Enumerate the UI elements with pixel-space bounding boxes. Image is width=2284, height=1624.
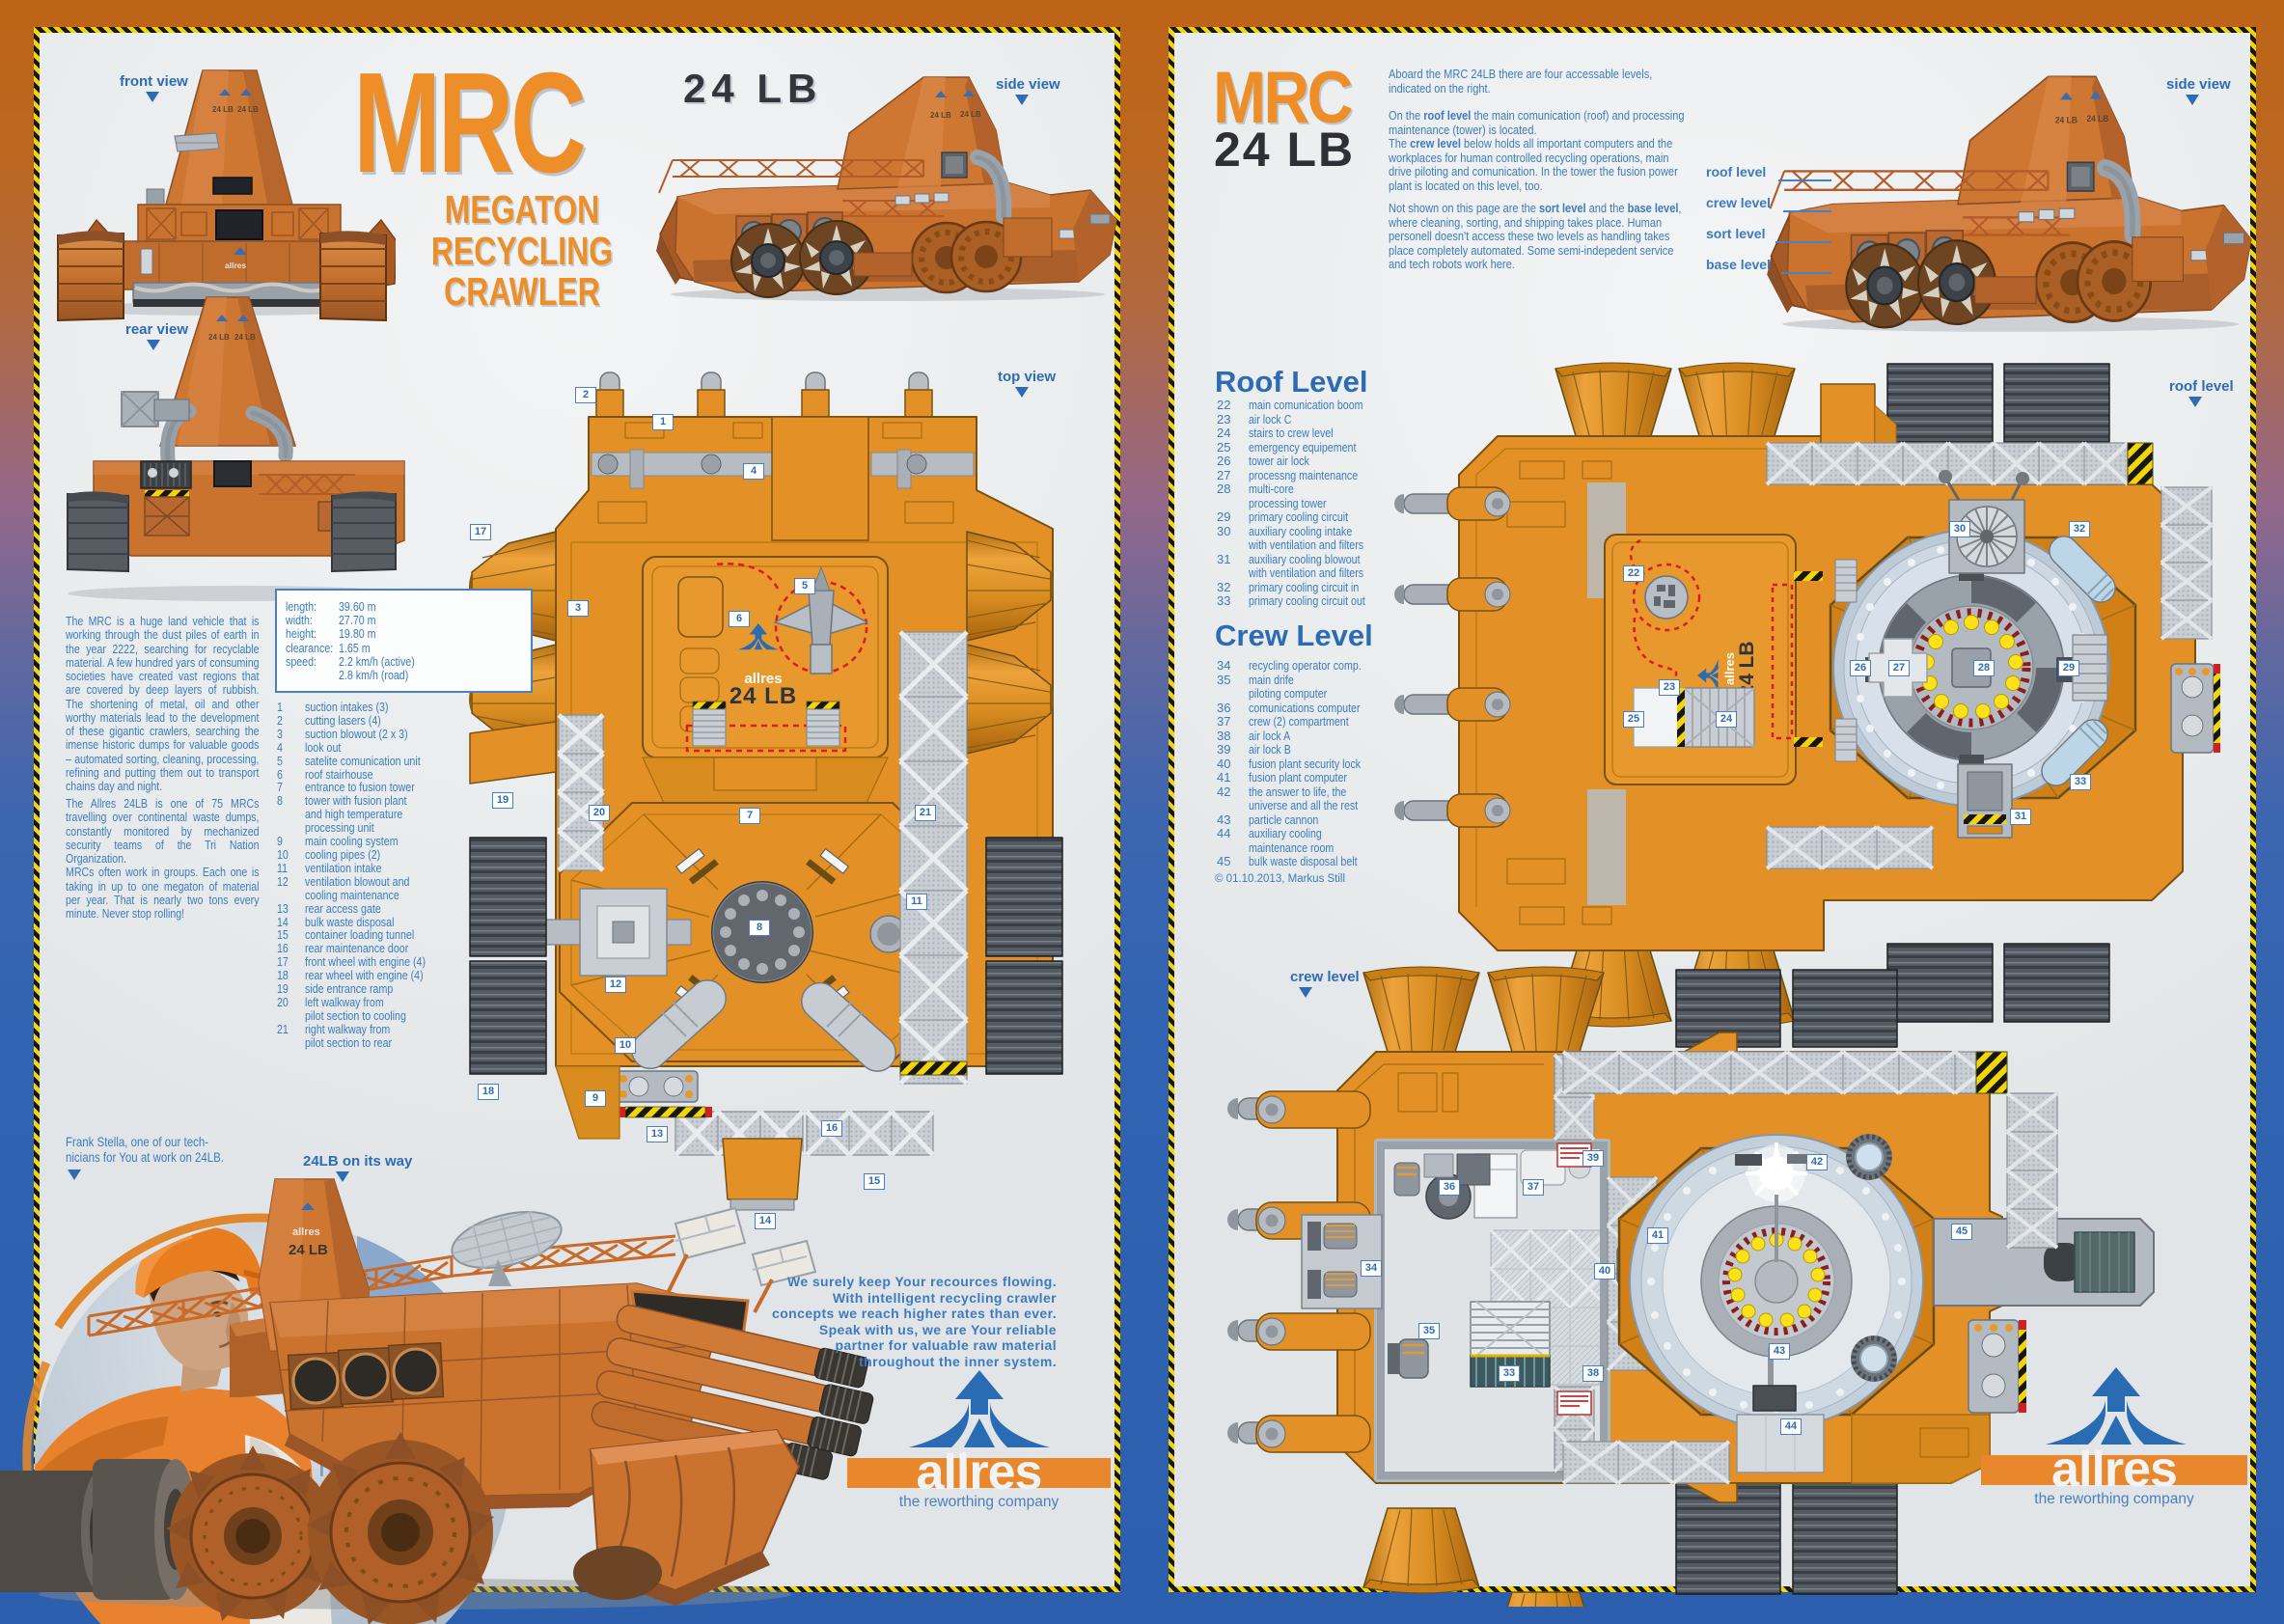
svg-text:24 LB: 24 LB: [960, 110, 981, 119]
svg-text:24 LB: 24 LB: [208, 333, 230, 342]
svg-text:allres: allres: [292, 1226, 320, 1238]
svg-text:24 LB: 24 LB: [729, 683, 797, 709]
svg-text:24 LB: 24 LB: [930, 111, 951, 120]
svg-text:24 LB: 24 LB: [237, 105, 259, 114]
svg-text:allres: allres: [1722, 652, 1737, 685]
svg-text:24 LB: 24 LB: [234, 333, 256, 342]
svg-text:24 LB: 24 LB: [289, 1242, 328, 1258]
svg-text:24 LB: 24 LB: [212, 105, 234, 114]
svg-text:allres: allres: [225, 261, 246, 270]
